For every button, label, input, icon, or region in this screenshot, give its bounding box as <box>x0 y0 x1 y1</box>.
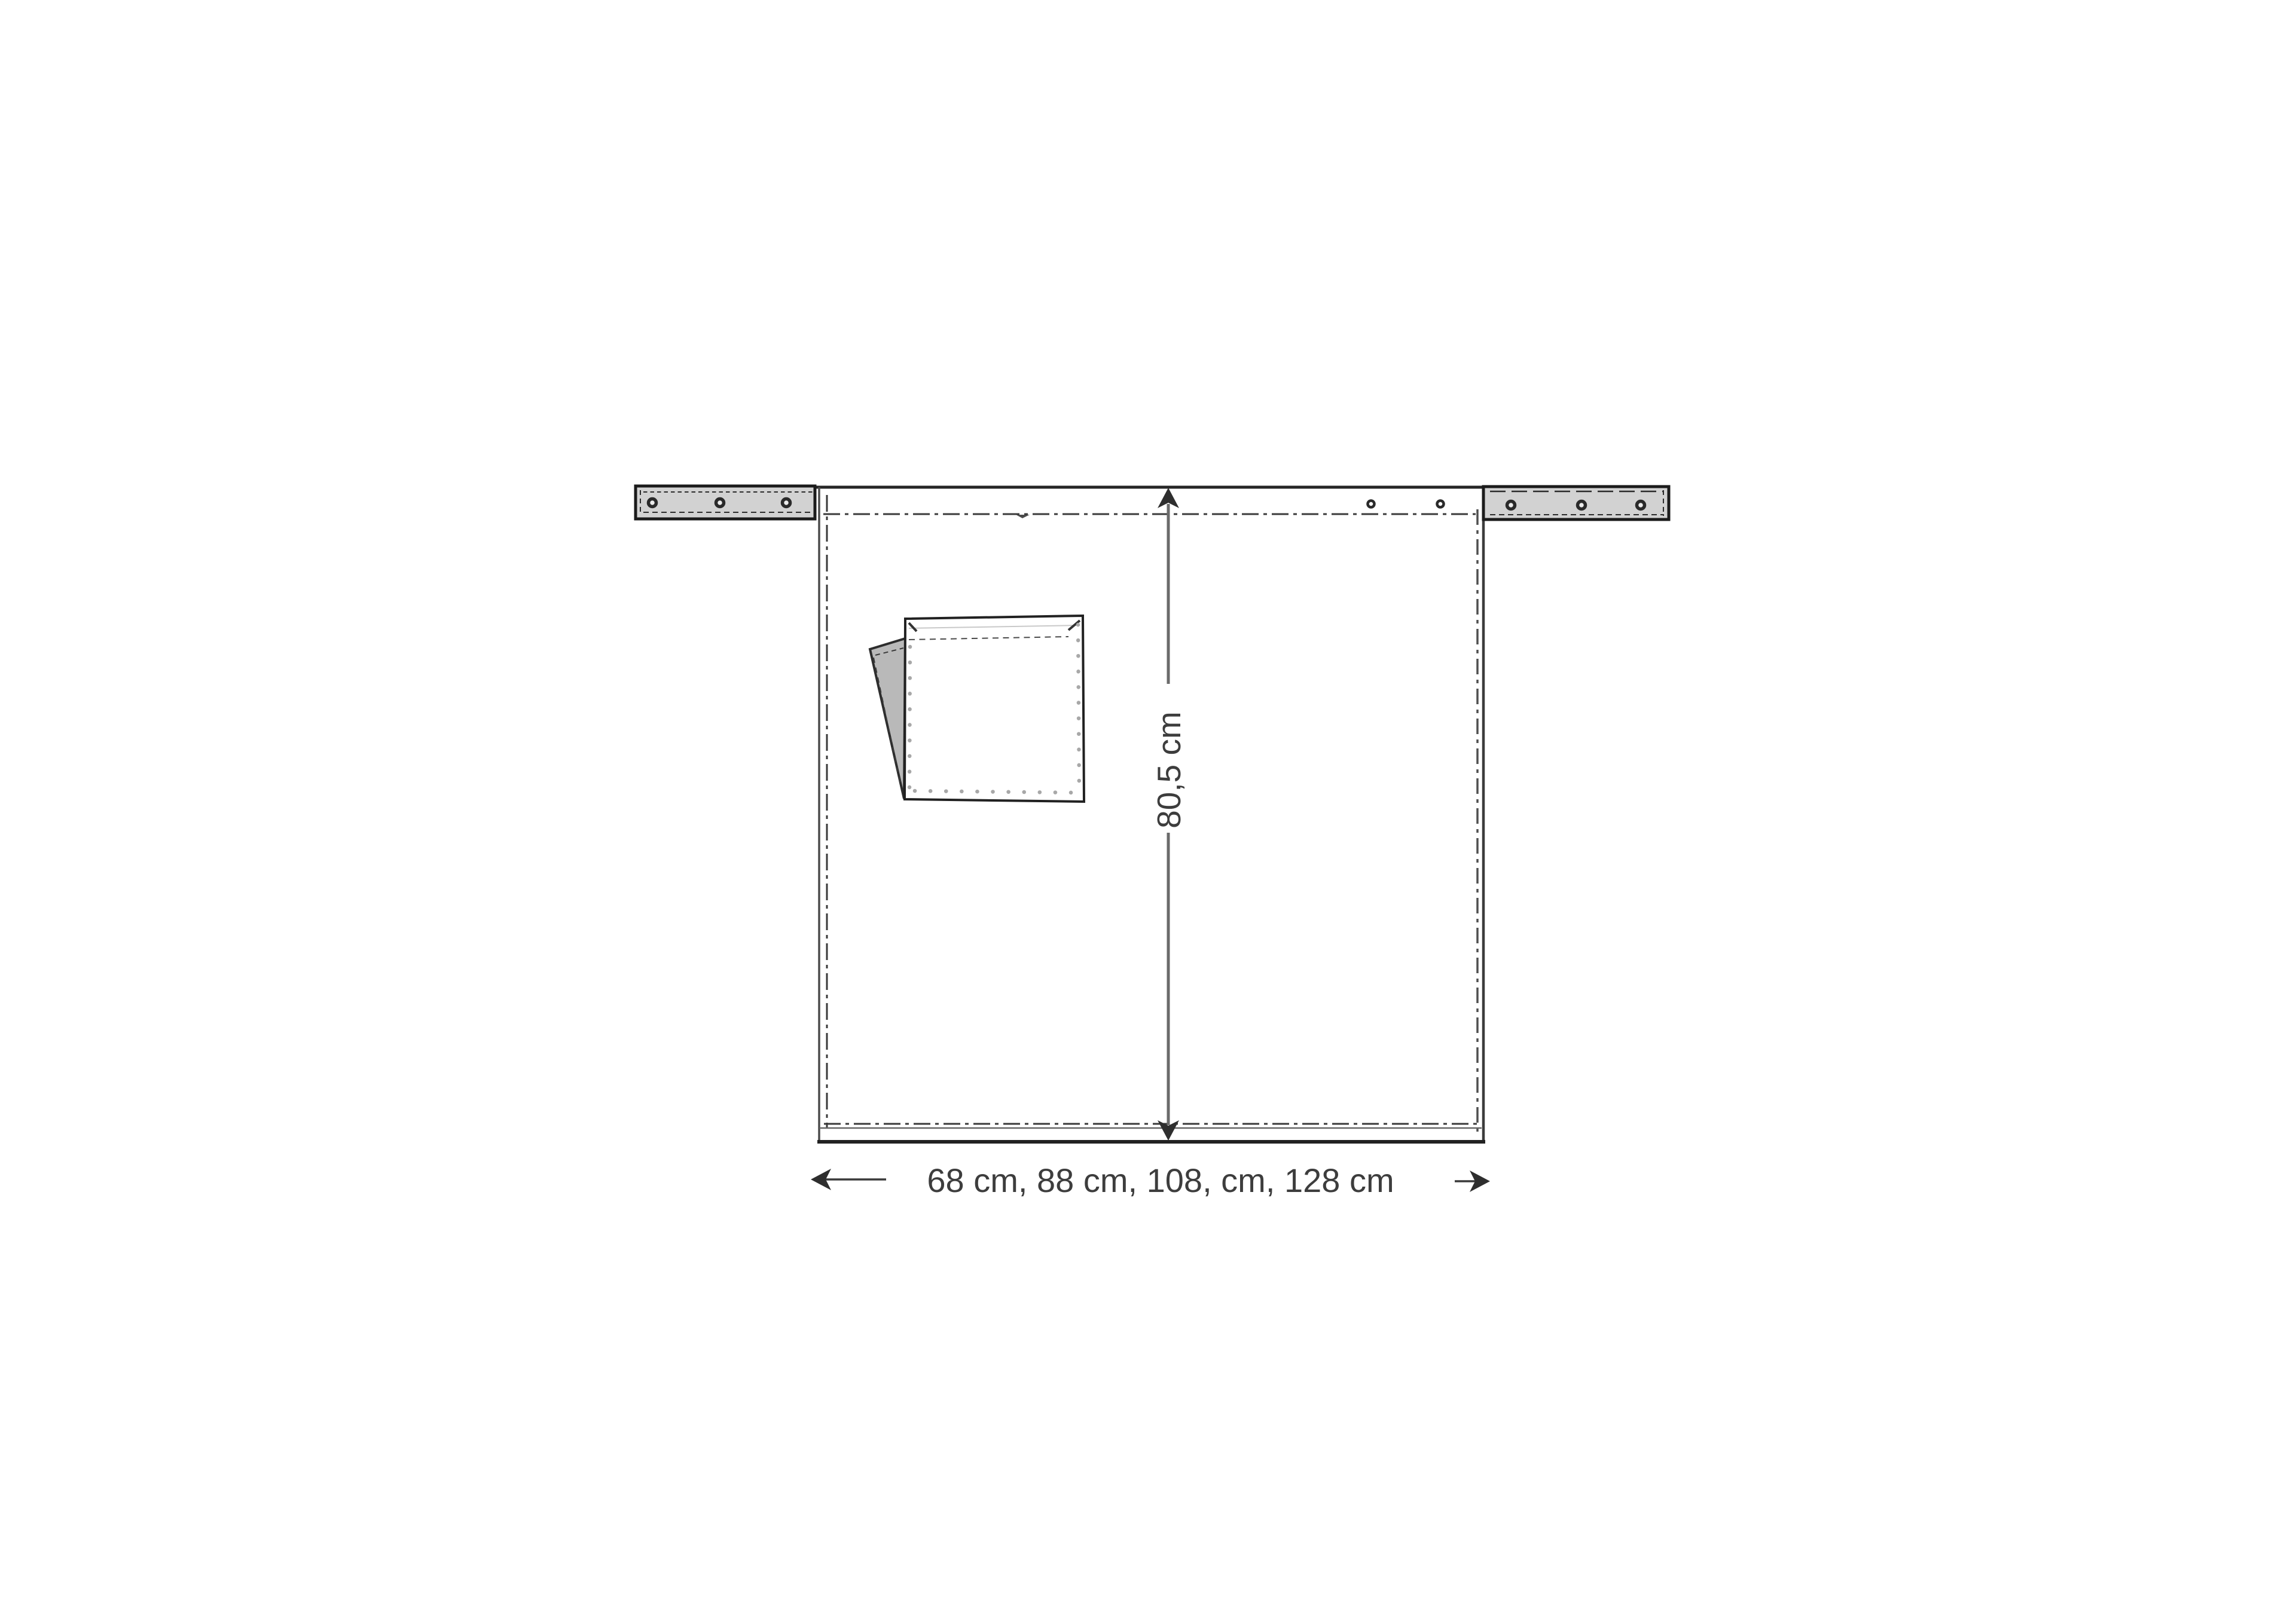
svg-text:68 cm, 88 cm, 108, cm, 128 cm: 68 cm, 88 cm, 108, cm, 128 cm <box>927 1162 1394 1199</box>
svg-text:80,5 cm: 80,5 cm <box>1150 711 1187 829</box>
